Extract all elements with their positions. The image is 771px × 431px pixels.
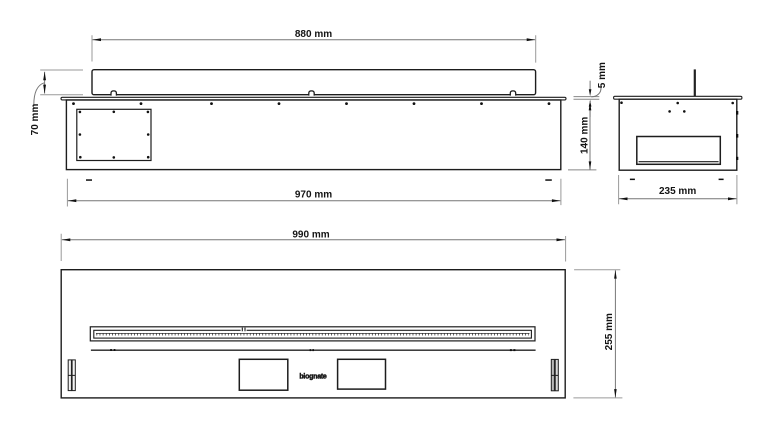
svg-text:880 mm: 880 mm xyxy=(295,29,332,40)
svg-text:970 mm: 970 mm xyxy=(295,189,332,200)
svg-text:990 mm: 990 mm xyxy=(292,229,329,240)
svg-text:235 mm: 235 mm xyxy=(659,186,696,197)
svg-text:biognate: biognate xyxy=(299,373,327,380)
svg-text:140 mm: 140 mm xyxy=(580,117,591,154)
svg-text:70 mm: 70 mm xyxy=(30,104,41,136)
svg-text:255 mm: 255 mm xyxy=(604,313,615,350)
svg-text:5 mm: 5 mm xyxy=(597,62,608,88)
